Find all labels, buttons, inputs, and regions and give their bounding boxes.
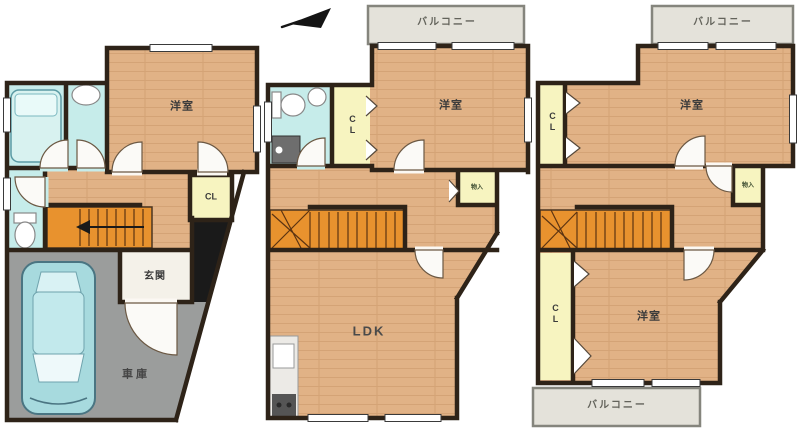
balcony-label-3f-bottom: バルコニー xyxy=(587,401,647,411)
room-label-3f-top: 洋室 xyxy=(680,101,704,112)
closet-label-1f: CL xyxy=(205,193,217,202)
storage-label-3f: 物入 xyxy=(742,183,754,189)
floor-1f xyxy=(4,45,261,421)
closet-label-3f-bottom: CL xyxy=(551,303,560,325)
balcony-label-2f: バルコニー xyxy=(417,18,477,28)
sink-1f xyxy=(72,85,100,105)
garage-label: 車庫 xyxy=(122,370,150,381)
floorplan-canvas: 洋室 CL 玄関 車庫 バルコニー 洋室 CL 物入 LDK バルコニー 洋室 … xyxy=(0,0,800,431)
room-label-3f-bottom: 洋室 xyxy=(637,312,661,323)
toilet-2f xyxy=(272,92,305,118)
ldk-label: LDK xyxy=(353,325,386,338)
floorplan-drawing xyxy=(0,0,800,431)
north-arrow-icon xyxy=(282,8,331,28)
stairs-2f xyxy=(270,210,405,250)
car-illustration xyxy=(22,262,95,414)
closet-label-2f: CL xyxy=(348,114,357,136)
entrance-label: 玄関 xyxy=(144,272,166,282)
kitchen-counter xyxy=(270,336,298,418)
floor-2f xyxy=(265,6,532,422)
stairs-3f xyxy=(540,210,672,250)
balcony-label-3f-top: バルコニー xyxy=(693,18,753,28)
storage-label-2f: 物入 xyxy=(471,185,483,191)
closet-label-3f-top: CL xyxy=(548,111,557,133)
room-label-2f-yoshitsu: 洋室 xyxy=(439,101,463,112)
floor-3f xyxy=(533,6,797,426)
sink-2f xyxy=(308,88,326,106)
toilet-1f xyxy=(14,213,36,248)
shower-unit xyxy=(272,136,300,163)
stairs-1f xyxy=(47,207,152,248)
room-label-1f-yoshitsu: 洋室 xyxy=(170,102,194,113)
